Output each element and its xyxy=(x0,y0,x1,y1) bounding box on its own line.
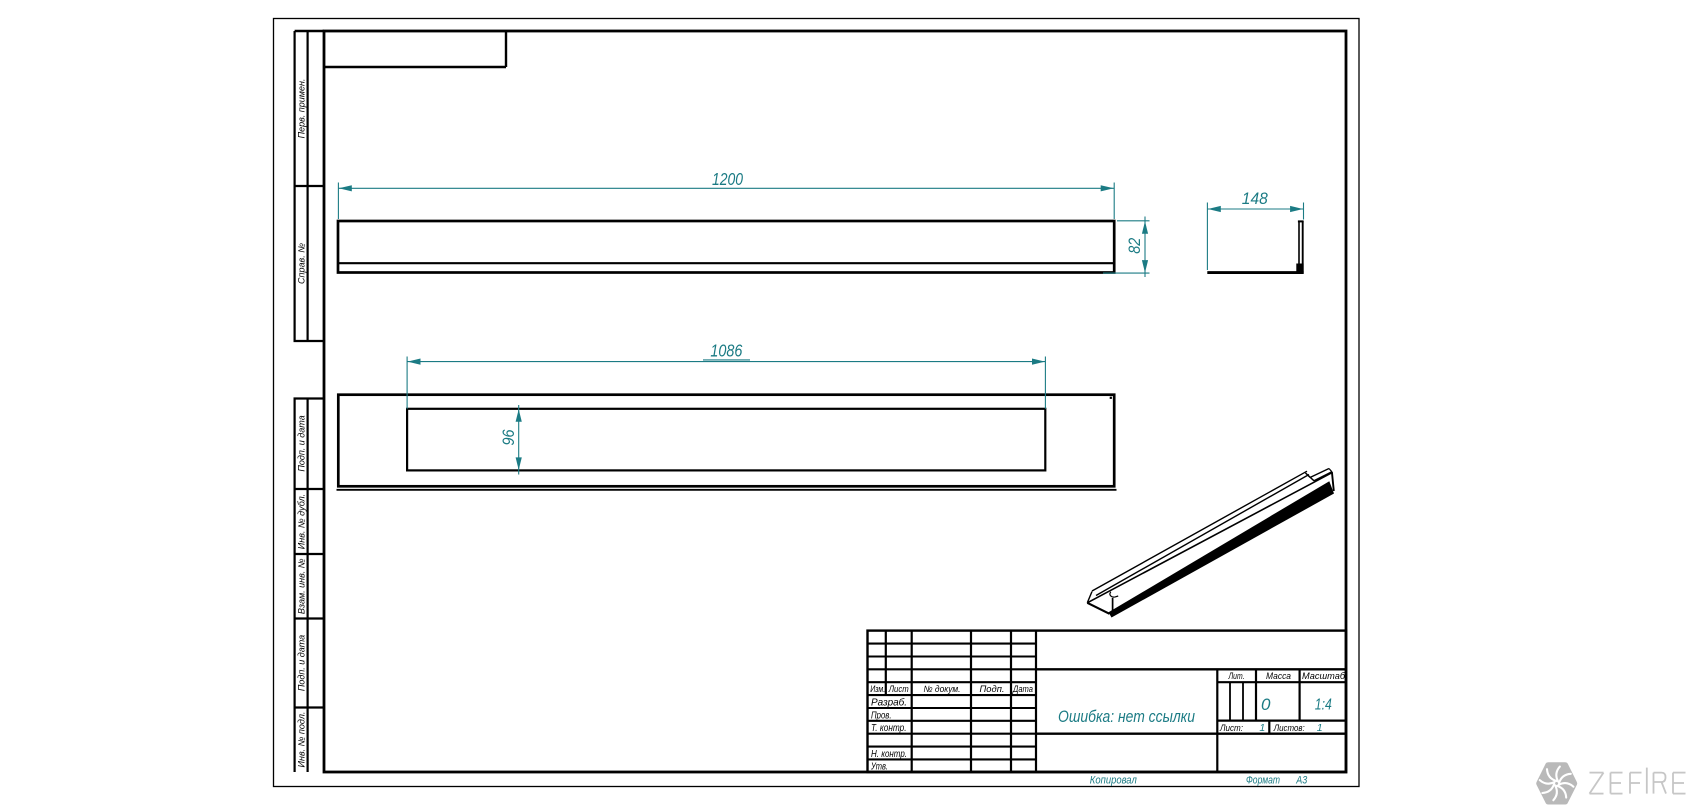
svg-text:Листов:: Листов: xyxy=(1273,723,1305,733)
svg-text:1086: 1086 xyxy=(710,341,742,361)
svg-text:Лист:: Лист: xyxy=(1219,723,1243,733)
svg-text:Утв.: Утв. xyxy=(870,762,888,773)
svg-text:Н. контр.: Н. контр. xyxy=(871,749,907,760)
svg-text:Подп. и дата: Подп. и дата xyxy=(297,415,307,471)
svg-text:Инв. № подл.: Инв. № подл. xyxy=(297,712,307,768)
svg-text:Копировал: Копировал xyxy=(1090,775,1137,787)
svg-text:0: 0 xyxy=(1261,695,1271,714)
svg-text:Справ. №: Справ. № xyxy=(297,243,307,284)
svg-text:1: 1 xyxy=(1317,722,1323,734)
svg-text:Т. контр.: Т. контр. xyxy=(871,723,907,734)
svg-text:Инв. № дубл.: Инв. № дубл. xyxy=(297,494,307,549)
svg-text:Подп.: Подп. xyxy=(980,684,1005,694)
svg-text:Дата: Дата xyxy=(1012,684,1033,694)
svg-text:1: 1 xyxy=(1259,722,1265,734)
svg-text:Подп. и дата: Подп. и дата xyxy=(297,635,307,691)
svg-text:Масса: Масса xyxy=(1266,671,1291,681)
svg-text:Разраб.: Разраб. xyxy=(871,697,907,709)
svg-text:148: 148 xyxy=(1242,190,1269,208)
svg-text:1200: 1200 xyxy=(712,169,743,189)
svg-text:Изм.: Изм. xyxy=(870,684,885,694)
svg-text:Лит.: Лит. xyxy=(1228,671,1245,681)
svg-text:Масштаб: Масштаб xyxy=(1302,671,1346,681)
svg-text:Перв. примен.: Перв. примен. xyxy=(297,79,307,139)
svg-text:1:4: 1:4 xyxy=(1315,697,1332,714)
svg-text:Пров.: Пров. xyxy=(871,710,892,721)
svg-text:№ докум.: № докум. xyxy=(924,684,961,694)
svg-text:Взам. инв. №: Взам. инв. № xyxy=(297,558,307,614)
svg-text:82: 82 xyxy=(1125,237,1144,253)
svg-text:А3: А3 xyxy=(1295,775,1308,787)
svg-text:96: 96 xyxy=(499,429,518,445)
svg-text:Формат: Формат xyxy=(1246,775,1280,787)
svg-text:Ошибка: нет ссылки: Ошибка: нет ссылки xyxy=(1058,707,1195,726)
svg-text:Лист: Лист xyxy=(888,684,909,694)
